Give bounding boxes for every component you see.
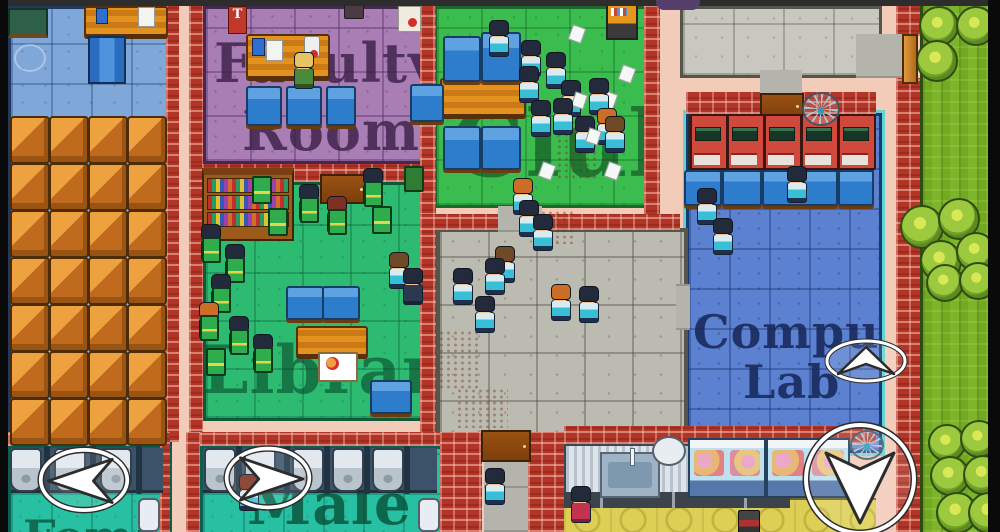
nav-down-button[interactable] xyxy=(801,420,919,532)
navy-hair xyxy=(521,40,541,56)
book xyxy=(252,38,265,56)
desk xyxy=(443,36,481,82)
desk xyxy=(370,380,412,414)
student xyxy=(518,66,538,104)
desk xyxy=(322,286,360,320)
student xyxy=(228,316,248,354)
wall xyxy=(440,432,482,532)
classroom-desk xyxy=(127,304,167,352)
stall-divider xyxy=(364,446,370,494)
orange-hair xyxy=(551,284,571,300)
student xyxy=(362,168,382,206)
computer-terminal xyxy=(727,114,765,170)
body xyxy=(489,36,509,57)
apple-sign xyxy=(318,352,358,382)
classroom-desk xyxy=(49,257,89,305)
papers xyxy=(138,7,155,27)
computer-terminal xyxy=(764,114,802,170)
navy-hair xyxy=(531,100,551,116)
ui-fragment xyxy=(656,0,700,10)
navy-hair xyxy=(546,52,566,68)
classroom-desk xyxy=(88,257,128,305)
computer-terminal xyxy=(690,114,728,170)
wall xyxy=(644,6,660,216)
body xyxy=(553,114,573,135)
body xyxy=(787,182,807,203)
student xyxy=(452,268,472,306)
desk xyxy=(722,170,762,206)
book xyxy=(202,237,221,263)
book xyxy=(300,197,319,223)
body xyxy=(713,234,733,255)
classroom-desk xyxy=(49,351,89,399)
student xyxy=(574,116,594,154)
body xyxy=(533,230,553,251)
sink xyxy=(138,498,160,532)
student xyxy=(200,224,220,262)
navy-hair xyxy=(589,78,609,94)
student xyxy=(712,218,732,256)
classroom-desk xyxy=(10,398,50,446)
body xyxy=(531,116,551,137)
student xyxy=(252,334,272,372)
classroom-desk xyxy=(88,304,128,352)
apple xyxy=(408,18,417,27)
dirt-patch xyxy=(438,330,482,390)
vending-machine xyxy=(606,2,638,40)
navy-hair xyxy=(403,268,423,284)
navy-hair xyxy=(519,66,539,82)
navy-hair xyxy=(485,468,505,484)
stool xyxy=(738,510,760,532)
book xyxy=(230,329,249,355)
student xyxy=(198,302,218,340)
game-viewport: Freshman Faculty Room Library Club Compu… xyxy=(0,0,1000,532)
book xyxy=(200,315,219,341)
classroom-desk xyxy=(10,257,50,305)
body xyxy=(294,68,314,89)
bag xyxy=(344,4,364,19)
arrow-left-icon xyxy=(37,445,131,515)
brown-hair xyxy=(605,116,625,132)
classroom-desk xyxy=(10,116,50,164)
navy-hair xyxy=(787,166,807,182)
student xyxy=(604,116,624,154)
classroom-desk xyxy=(49,163,89,211)
body xyxy=(579,302,599,323)
campus-gate xyxy=(902,34,918,84)
navy-hair xyxy=(485,258,505,274)
navy-hair xyxy=(579,286,599,302)
computer-terminal xyxy=(838,114,876,170)
classroom-desk xyxy=(127,398,167,446)
arrow-down-icon xyxy=(801,420,919,532)
navy-hair xyxy=(475,296,495,312)
bush xyxy=(916,40,958,82)
body xyxy=(475,312,495,333)
arrow-up-icon xyxy=(822,337,910,385)
classroom-desk xyxy=(127,257,167,305)
body xyxy=(485,274,505,295)
urinal xyxy=(332,448,364,492)
spider-web-icon xyxy=(802,92,840,126)
stall-divider xyxy=(404,446,410,494)
body xyxy=(403,284,423,305)
body xyxy=(605,132,625,153)
book xyxy=(364,181,383,207)
book xyxy=(254,347,273,373)
desk xyxy=(326,86,356,126)
courtyard-south-door xyxy=(481,430,531,462)
food-display-case xyxy=(688,438,766,498)
desk xyxy=(481,126,521,170)
body xyxy=(453,284,473,305)
suit xyxy=(402,268,422,306)
navy-hair xyxy=(713,218,733,234)
classroom-desk xyxy=(127,351,167,399)
classroom-desk xyxy=(88,351,128,399)
courtyard-north xyxy=(680,6,882,78)
classroom-desk xyxy=(127,210,167,258)
orange-hair xyxy=(513,178,533,194)
student xyxy=(532,214,552,252)
desk xyxy=(410,84,444,122)
classroom-desk xyxy=(49,304,89,352)
student xyxy=(484,468,504,506)
student xyxy=(552,98,572,136)
navy-hair xyxy=(571,486,591,502)
classroom-desk xyxy=(88,116,128,164)
wall-outer xyxy=(896,6,920,36)
book xyxy=(268,208,288,236)
desk xyxy=(838,170,874,206)
classroom-desk xyxy=(88,210,128,258)
body xyxy=(551,300,571,321)
student xyxy=(484,258,504,296)
sink xyxy=(418,498,440,532)
wall xyxy=(186,432,200,532)
desk xyxy=(286,286,324,320)
navy-hair xyxy=(533,214,553,230)
classroom-desk xyxy=(127,116,167,164)
top-bar xyxy=(0,0,1000,6)
body xyxy=(571,502,591,523)
classroom-desk xyxy=(49,116,89,164)
book xyxy=(328,209,347,235)
papers xyxy=(266,40,283,61)
stall-divider xyxy=(324,446,330,494)
student xyxy=(326,196,346,234)
trash-bin xyxy=(404,166,424,192)
desk xyxy=(286,86,322,126)
apple-icon xyxy=(326,357,339,370)
student xyxy=(550,284,570,322)
team-banner: T xyxy=(228,6,247,34)
student xyxy=(530,100,550,138)
navy-hair xyxy=(697,188,717,204)
book xyxy=(252,176,272,204)
navy-hair xyxy=(489,20,509,36)
letterbox-left xyxy=(0,0,8,532)
student xyxy=(474,296,494,334)
student xyxy=(298,184,318,222)
classroom-desk xyxy=(88,398,128,446)
nav-up-button[interactable] xyxy=(822,337,910,385)
cook xyxy=(570,486,590,524)
classroom-desk xyxy=(49,210,89,258)
passage xyxy=(676,284,690,330)
navy-hair xyxy=(453,268,473,284)
blackboard xyxy=(8,8,48,38)
arrow-right-icon xyxy=(222,444,314,512)
brown-hair xyxy=(389,252,409,268)
body xyxy=(485,484,505,505)
urinal xyxy=(372,448,404,492)
kitchen-sink xyxy=(600,452,660,498)
teacher xyxy=(293,52,313,90)
student xyxy=(488,20,508,58)
student xyxy=(786,166,806,204)
navy-hair xyxy=(553,98,573,114)
blond-hair xyxy=(294,52,314,68)
wall xyxy=(420,214,500,230)
desk xyxy=(443,126,481,170)
club-table xyxy=(440,78,526,116)
classroom-desk xyxy=(10,163,50,211)
dirt-patch xyxy=(456,388,508,428)
letterbox-right xyxy=(988,0,1000,532)
classroom-desk xyxy=(49,398,89,446)
classroom-desk xyxy=(10,351,50,399)
wall xyxy=(528,432,564,532)
book-row xyxy=(207,178,289,193)
book xyxy=(96,8,108,24)
classroom-desk xyxy=(10,304,50,352)
classroom-desk xyxy=(10,210,50,258)
classroom-desk xyxy=(88,163,128,211)
book xyxy=(372,206,392,234)
passage-to-gate xyxy=(856,34,904,78)
nav-right-button[interactable] xyxy=(222,444,314,512)
book xyxy=(206,348,226,376)
stall-divider xyxy=(136,446,142,494)
nav-left-button[interactable] xyxy=(37,445,131,515)
serving-tray xyxy=(652,436,686,466)
wall xyxy=(166,6,179,442)
student xyxy=(578,286,598,324)
classroom-desk xyxy=(127,163,167,211)
floor-marking xyxy=(14,44,46,72)
cabinet xyxy=(88,36,126,84)
desk xyxy=(246,86,282,126)
